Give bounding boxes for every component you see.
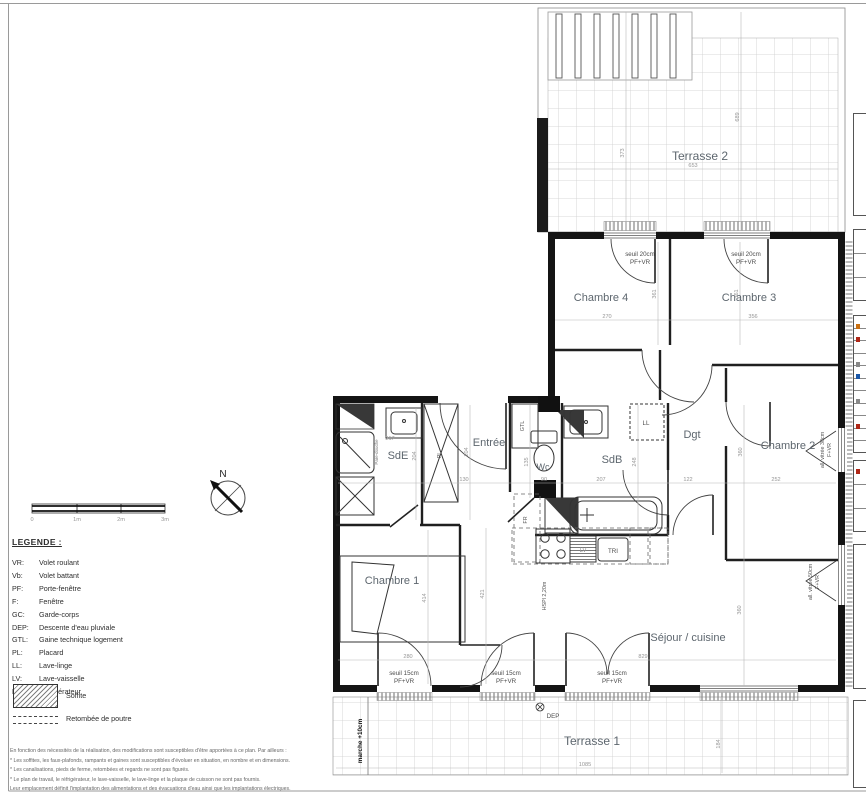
terrasse2-area — [537, 8, 845, 232]
shaft-block-top — [538, 396, 560, 412]
compass-n-label: N — [219, 469, 226, 480]
dim-ch1-h2: 421 — [480, 589, 486, 598]
footer-note-line: Leur emplacement définit l'implantation … — [10, 785, 291, 795]
legend-abbr: GC: — [12, 609, 39, 622]
clipped-panel-2 — [853, 229, 866, 301]
chambre2-label: Chambre 2 — [761, 440, 815, 452]
entree-label: Entrée — [473, 437, 505, 449]
legend-abbr: GTL: — [12, 634, 39, 647]
scale-bar — [32, 504, 165, 513]
clipped-panel-6 — [853, 700, 866, 788]
footer-notes: En fonction des nécessités de la réalisa… — [10, 747, 291, 795]
shower — [336, 432, 374, 473]
door-leaves — [378, 239, 770, 686]
sdb-label: SdB — [602, 454, 623, 466]
dim-sdb-w: 207 — [596, 477, 605, 483]
dim-entree-h: 204 — [464, 447, 470, 456]
legend-item: PL:Placard — [12, 647, 182, 660]
allege-sejour-line1: all. vitrée 50cm — [808, 563, 814, 600]
dim-sde-w: 217 — [385, 436, 394, 442]
legend-label: Porte-fenêtre — [39, 584, 81, 593]
lv-label: LV — [579, 547, 587, 554]
dim-terrasse2-h2: 689 — [735, 112, 741, 121]
legend-abbr: DEP: — [12, 622, 39, 635]
scale-tick-0: 0 — [30, 517, 33, 523]
seuil-door2-line2: PF+VR — [496, 678, 517, 685]
dim-terrasse1-h: 184 — [716, 739, 722, 748]
footer-note-line: * Le plan de travail, le réfrigérateur, … — [10, 776, 291, 786]
legend-title: LEGENDE : — [12, 537, 182, 547]
allege-sejour-line2: F+VR — [815, 575, 821, 589]
pare-douche-label: Pare-douche — [374, 439, 379, 465]
footer-note-line: En fonction des nécessités de la réalisa… — [10, 747, 291, 757]
dim-ch2-h: 360 — [738, 447, 744, 456]
legend-label: Volet roulant — [39, 558, 79, 567]
chambre1-label: Chambre 1 — [365, 575, 419, 587]
footer-note-line: * Les soffites, les faux-plafonds, rampa… — [10, 757, 291, 767]
terrasse1-label: Terrasse 1 — [564, 734, 620, 748]
fixtures — [336, 396, 836, 642]
sde-label: SdE — [388, 450, 409, 462]
terrasse2-left-wall — [537, 118, 548, 232]
dim-sdb-h: 248 — [632, 457, 638, 466]
dim-dgt-w: 122 — [683, 477, 692, 483]
legend-abbr: PF: — [12, 583, 39, 596]
bed — [340, 556, 465, 642]
scale-tick-3m: 3m — [161, 517, 169, 523]
legend-label: Garde-corps — [39, 610, 79, 619]
legend-item: DEP:Descente d'eau pluviale — [12, 622, 182, 635]
seuil-ch3-line2: PF+VR — [736, 259, 757, 266]
marche-label: marche +10cm — [357, 718, 364, 763]
dim-ch4-w: 270 — [602, 314, 611, 320]
legend-item: PF:Porte-fenêtre — [12, 583, 182, 596]
legend-abbr: F: — [12, 596, 39, 609]
sejour-cuisine-label: Séjour / cuisine — [650, 632, 725, 644]
legend-item: VR:Volet roulant — [12, 557, 182, 570]
footer-note-line: * Les canalisations, pieds de ferme, ret… — [10, 766, 291, 776]
dim-ch1-w: 280 — [403, 654, 412, 660]
pl-label: PL — [437, 452, 443, 459]
bathtub — [570, 497, 662, 534]
retombee-swatch-line1 — [13, 716, 58, 717]
dim-entree-w: 130 — [459, 477, 468, 483]
dim-sejour-w: 829 — [638, 654, 647, 660]
dim-wc-w: 90 — [541, 477, 547, 483]
legend-item: LL:Lave-linge — [12, 660, 182, 673]
door2-sill — [480, 693, 535, 701]
scale-tick-2m: 2m — [117, 517, 125, 523]
legend-label: Volet battant — [39, 571, 79, 580]
scale-tick-1m: 1m — [73, 517, 81, 523]
sde-washbasin — [386, 408, 422, 438]
floor-plan-sheet: Terrasse 2Terrasse 1Chambre 4Chambre 3Ch… — [0, 0, 866, 800]
chambre3-label: Chambre 3 — [722, 292, 776, 304]
legend-abbr: LL: — [12, 660, 39, 673]
legend-item: GC:Garde-corps — [12, 609, 182, 622]
wc-label: Wc — [537, 462, 550, 472]
legend-item: F:Fenêtre — [12, 596, 182, 609]
clipped-panel-5 — [853, 544, 866, 689]
entry-door-opening — [438, 395, 508, 404]
sejour-bottom-window-sill — [700, 693, 798, 701]
dim-sde-h: 204 — [412, 451, 418, 460]
dim-terrasse1-w: 1085 — [579, 762, 591, 768]
seuil-ch4-line1: seuil 20cm — [625, 251, 655, 258]
dim-terrasse2-h1: 373 — [620, 148, 626, 157]
legend-label: Descente d'eau pluviale — [39, 623, 115, 632]
hspl-label: HSPl 2,20m — [542, 581, 548, 610]
gtl-label: GTL — [520, 421, 526, 431]
dim-ch1-h1: 414 — [422, 593, 428, 602]
seuil-door3-line1: seuil 15cm — [597, 670, 627, 677]
compass-icon — [210, 480, 245, 515]
dim-wc-h: 135 — [524, 457, 530, 466]
dep-symbol-icon — [536, 703, 544, 711]
fr-label: FR — [523, 516, 529, 523]
retombee-label: Retombée de poutre — [66, 714, 132, 723]
legend-label: Lave-linge — [39, 661, 72, 670]
ll-label: LL — [643, 420, 650, 427]
legend-label: Placard — [39, 648, 63, 657]
allege-ch2-line2: F+VR — [827, 443, 833, 457]
chambre4-label: Chambre 4 — [574, 292, 628, 304]
legend-item: Vb:Volet battant — [12, 570, 182, 583]
seuil-door2-line1: seuil 15cm — [491, 670, 521, 677]
allege-ch2-line1: all. vitrée 30cm — [820, 431, 826, 468]
soffite-swatch — [13, 684, 58, 708]
terrasse2-label: Terrasse 2 — [672, 149, 728, 163]
legend-abbr: PL: — [12, 647, 39, 660]
door1-sill — [377, 693, 432, 701]
retombee-swatch-line2 — [13, 723, 58, 724]
legend-item: GTL:Gaine technique logement — [12, 634, 182, 647]
dgt-label: Dgt — [683, 429, 700, 441]
legend-abbr: VR: — [12, 557, 39, 570]
tri-label: TRI — [608, 548, 618, 555]
ch3-window-sill — [704, 222, 770, 231]
legend-label: Gaine technique logement — [39, 635, 123, 644]
seuil-ch4-line2: PF+VR — [630, 259, 651, 266]
ch4-window-sill — [604, 222, 656, 231]
clipped-panel-1 — [853, 113, 866, 216]
dep-label: DEP — [547, 713, 560, 720]
seuil-door3-line2: PF+VR — [602, 678, 623, 685]
dim-terrasse2-w: 653 — [688, 163, 697, 169]
clipped-panel-3 — [853, 315, 866, 453]
soffite-triangle-sde — [336, 404, 374, 429]
soffite-label: Soffite — [66, 691, 86, 700]
dim-sejour-h: 360 — [737, 605, 743, 614]
legend: LEGENDE : VR:Volet roulant Vb:Volet batt… — [12, 537, 182, 699]
legend-abbr: Vb: — [12, 570, 39, 583]
dim-ch4-h: 361 — [652, 289, 658, 298]
legend-items: VR:Volet roulant Vb:Volet battant PF:Por… — [12, 557, 182, 699]
seuil-ch3-line1: seuil 20cm — [731, 251, 761, 258]
dim-ch2-w: 252 — [771, 477, 780, 483]
dim-ch3-h: 361 — [734, 289, 740, 298]
seuil-door1-line2: PF+VR — [394, 678, 415, 685]
legend-label: Lave-vaisselle — [39, 674, 85, 683]
legend-label: Fenêtre — [39, 597, 64, 606]
door3-sill — [565, 693, 650, 701]
dim-ch3-w: 356 — [748, 314, 757, 320]
door-swing-arcs — [378, 239, 770, 687]
clipped-panel-4 — [853, 460, 866, 532]
seuil-door1-line1: seuil 15cm — [389, 670, 419, 677]
